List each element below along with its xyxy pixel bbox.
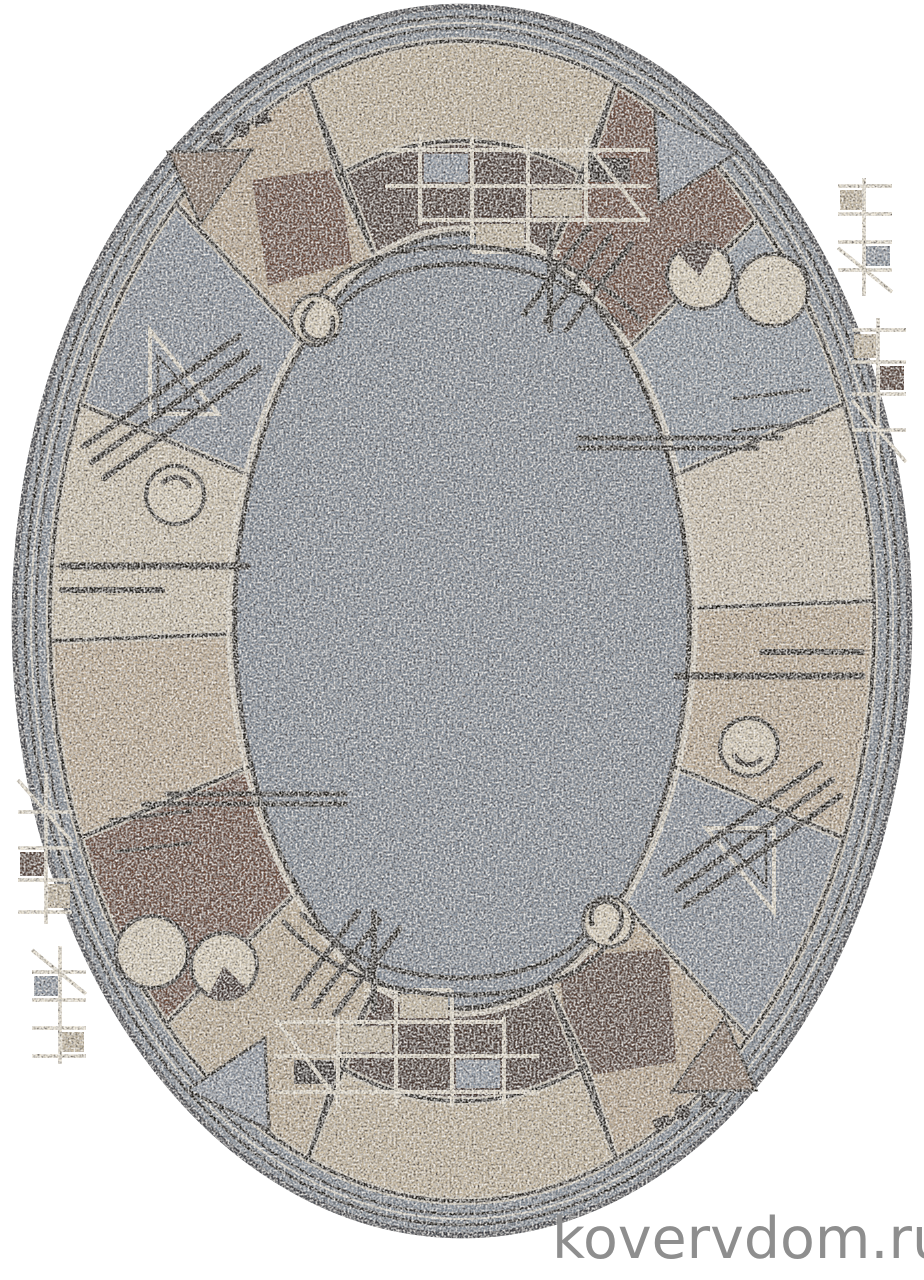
- watermark: kovervdom.ru: [552, 1206, 924, 1272]
- photo-canvas: kovervdom.ru: [0, 0, 924, 1280]
- rug-photo: [0, 0, 924, 1280]
- rug: [13, 5, 911, 1237]
